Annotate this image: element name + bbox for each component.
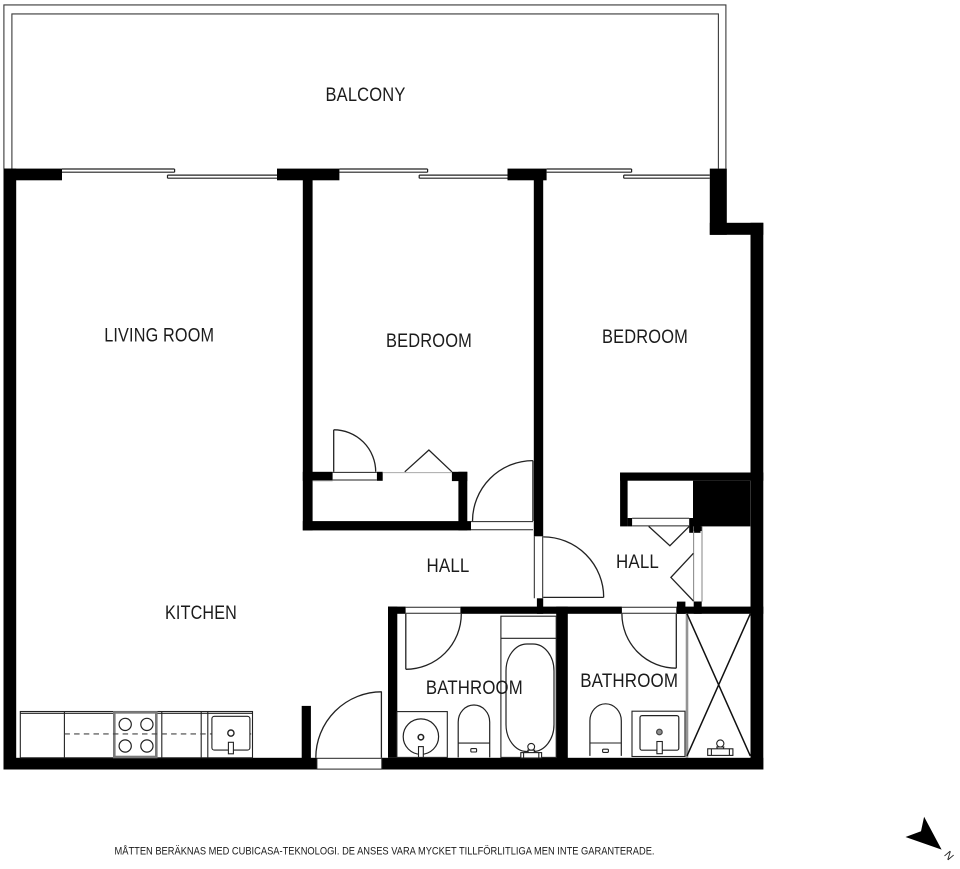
svg-text:BEDROOM: BEDROOM — [602, 326, 688, 348]
svg-text:BALCONY: BALCONY — [326, 84, 406, 106]
svg-text:BEDROOM: BEDROOM — [386, 330, 472, 352]
svg-text:MÅTTEN BERÄKNAS MED CUBICASA-T: MÅTTEN BERÄKNAS MED CUBICASA-TEKNOLOGI. … — [115, 845, 655, 858]
svg-text:KITCHEN: KITCHEN — [165, 602, 237, 624]
svg-text:LIVING ROOM: LIVING ROOM — [104, 325, 214, 347]
svg-text:HALL: HALL — [427, 555, 470, 577]
svg-text:HALL: HALL — [616, 551, 659, 573]
svg-text:BATHROOM: BATHROOM — [580, 670, 678, 692]
svg-text:BATHROOM: BATHROOM — [426, 677, 523, 699]
